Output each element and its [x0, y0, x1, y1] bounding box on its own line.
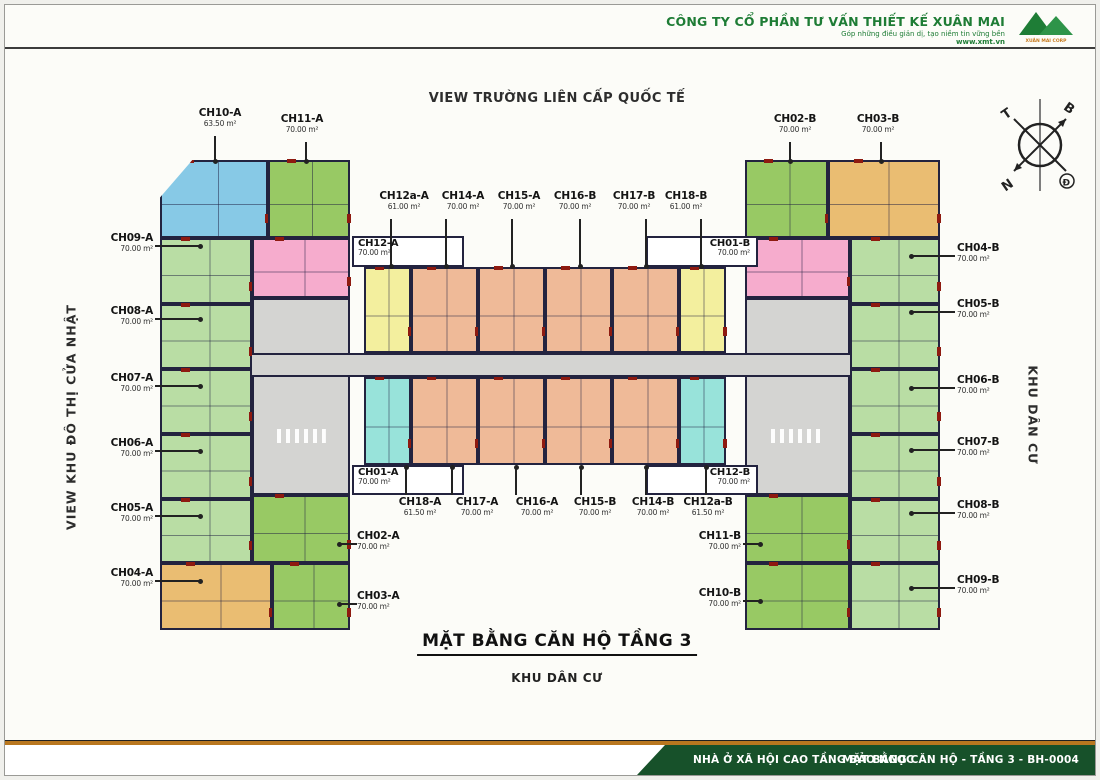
unit-CH07-B — [850, 434, 940, 499]
unit-CH01-B — [745, 238, 850, 298]
label-CH11-A: CH11-A70.00 m² — [262, 114, 342, 134]
leader-CH06-B — [911, 387, 955, 389]
leader-CH06-A — [155, 450, 201, 452]
unit-CH06-A — [160, 434, 252, 499]
leader-CH16-B — [579, 219, 581, 267]
label-CH08-B: CH08-B70.00 m² — [957, 500, 1043, 520]
label-CH04-A: CH04-A70.00 m² — [67, 568, 153, 588]
leader-CH04-B — [911, 255, 955, 257]
label-CH10-B: CH10-B70.00 m² — [671, 588, 741, 608]
unit-core-B — [745, 298, 850, 495]
unit-CH16-A — [478, 377, 545, 465]
plan-subtitle: KHU DÂN CƯ — [511, 671, 603, 685]
unit-CH15-A — [478, 267, 545, 353]
label-CH15-A: CH15-A70.00 m² — [490, 191, 548, 211]
label-CH16-B: CH16-B70.00 m² — [546, 191, 604, 211]
unit-CH17-B — [612, 267, 679, 353]
unit-CH05-B — [850, 304, 940, 369]
unit-CH11-B — [745, 495, 850, 563]
unit-CH05-A — [160, 499, 252, 563]
label-CH14-B: CH14-B70.00 m² — [625, 497, 681, 517]
leader-CH02-A — [339, 543, 357, 545]
unit-CH12a-A — [364, 267, 411, 353]
label-CH05-B: CH05-B70.00 m² — [957, 299, 1043, 319]
unit-CH10-B — [745, 563, 850, 630]
drawing-title: MẶT BẰNG CĂN HỘ - TẦNG 3 - BH-0004 — [842, 754, 1079, 766]
unit-CH03-B — [828, 160, 940, 238]
drawing-sheet: CÔNG TY CỔ PHẦN TƯ VẤN THIẾT KẾ XUÂN MAI… — [4, 4, 1096, 776]
leader-CH02-B — [789, 142, 791, 162]
leader-CH04-A — [155, 580, 201, 582]
footer-accent-stripe — [5, 740, 1095, 745]
unit-CH09-A — [160, 238, 252, 304]
unit-CH18-B — [679, 267, 726, 353]
label-CH06-B: CH06-B70.00 m² — [957, 375, 1043, 395]
label-CH14-A: CH14-A70.00 m² — [434, 191, 492, 211]
leader-CH05-A — [155, 515, 201, 517]
label-CH09-A: CH09-A70.00 m² — [67, 233, 153, 253]
label-CH10-A: CH10-A63.50 m² — [180, 108, 260, 128]
label-CH01-B: CH01-B70.00 m² — [650, 238, 750, 257]
leader-CH08-A — [155, 318, 201, 320]
leader-CH09-A — [155, 245, 201, 247]
unit-core-A — [252, 298, 350, 495]
label-CH09-B: CH09-B70.00 m² — [957, 575, 1043, 595]
label-CH08-A: CH08-A70.00 m² — [67, 306, 153, 326]
unit-CH11-A — [268, 160, 350, 238]
leader-CH11-A — [305, 142, 307, 162]
label-CH16-A: CH16-A70.00 m² — [509, 497, 565, 517]
leader-CH10-B — [743, 600, 761, 602]
unit-corridor — [252, 353, 850, 377]
leader-CH15-A — [511, 219, 513, 267]
label-CH15-B: CH15-B70.00 m² — [567, 497, 623, 517]
unit-CH04-B — [850, 238, 940, 304]
unit-CH17-A — [411, 377, 478, 465]
label-CH18-B: CH18-B61.00 m² — [657, 191, 715, 211]
unit-CH12-A — [252, 238, 350, 298]
label-CH12a-A: CH12a-A61.00 m² — [375, 191, 433, 211]
label-CH02-B: CH02-B70.00 m² — [755, 114, 835, 134]
footer-title-bar: NHÀ Ở XÃ HỘI CAO TẦNG BẢO NGỌC MẶT BẰNG … — [5, 745, 1095, 775]
unit-CH03-A — [272, 563, 350, 630]
label-CH07-B: CH07-B70.00 m² — [957, 437, 1043, 457]
leader-CH05-B — [911, 311, 955, 313]
unit-CH18-A — [364, 377, 411, 465]
label-CH06-A: CH06-A70.00 m² — [67, 438, 153, 458]
label-CH17-A: CH17-A70.00 m² — [449, 497, 505, 517]
label-CH03-A: CH03-A70.00 m² — [357, 591, 427, 611]
floor-plan: CH10-A63.50 m²CH11-A70.00 m²CH02-B70.00 … — [5, 5, 1095, 775]
label-CH11-B: CH11-B70.00 m² — [671, 531, 741, 551]
label-CH12-B: CH12-B70.00 m² — [650, 467, 750, 486]
unit-CH14-B — [612, 377, 679, 465]
leader-CH08-B — [911, 512, 955, 514]
label-CH05-A: CH05-A70.00 m² — [67, 503, 153, 523]
unit-CH04-A — [160, 563, 272, 630]
label-CH07-A: CH07-A70.00 m² — [67, 373, 153, 393]
leader-CH07-A — [155, 385, 201, 387]
label-CH12a-B: CH12a-B61.50 m² — [680, 497, 736, 517]
label-CH02-A: CH02-A70.00 m² — [357, 531, 427, 551]
label-CH17-B: CH17-B70.00 m² — [605, 191, 663, 211]
leader-CH10-A — [214, 136, 216, 162]
unit-CH08-B — [850, 499, 940, 563]
unit-CH07-A — [160, 369, 252, 434]
leader-CH15-B — [580, 467, 582, 495]
leader-CH14-B — [645, 467, 647, 495]
leader-CH17-B — [645, 219, 647, 267]
footer-white-wedge — [5, 745, 665, 775]
label-CH03-B: CH03-B70.00 m² — [838, 114, 918, 134]
plan-title: MẶT BẰNG CĂN HỘ TẦNG 3 — [417, 631, 697, 656]
unit-CH06-B — [850, 369, 940, 434]
unit-CH08-A — [160, 304, 252, 369]
unit-CH02-A — [252, 495, 350, 563]
leader-CH11-B — [743, 543, 761, 545]
label-CH12-A: CH12-A70.00 m² — [358, 238, 458, 257]
leader-CH16-A — [515, 467, 517, 495]
leader-CH09-B — [911, 587, 955, 589]
unit-CH15-B — [545, 377, 612, 465]
leader-CH03-A — [339, 603, 357, 605]
label-CH18-A: CH18-A61.50 m² — [392, 497, 448, 517]
label-CH01-A: CH01-A70.00 m² — [358, 467, 458, 486]
unit-CH02-B — [745, 160, 828, 238]
unit-CH14-A — [411, 267, 478, 353]
leader-CH03-B — [880, 142, 882, 162]
unit-CH09-B — [850, 563, 940, 630]
unit-CH12a-B — [679, 377, 726, 465]
unit-CH16-B — [545, 267, 612, 353]
unit-CH10-A — [160, 160, 268, 238]
label-CH04-B: CH04-B70.00 m² — [957, 243, 1043, 263]
leader-CH07-B — [911, 449, 955, 451]
